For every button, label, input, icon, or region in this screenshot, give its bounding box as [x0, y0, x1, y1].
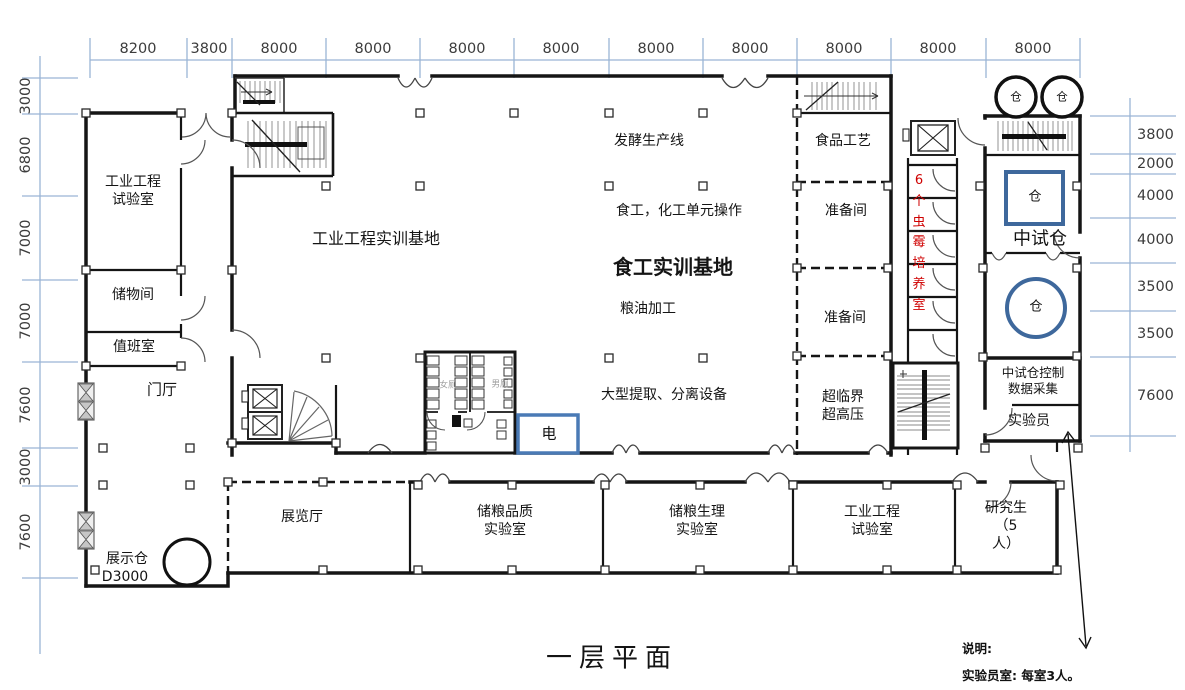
dim-right-6: 7600	[1137, 388, 1174, 404]
display-silo-circle	[164, 539, 210, 585]
room-pilot-silo: 中试仓	[1013, 227, 1067, 250]
silo-glyph-1: 仓	[1010, 90, 1022, 105]
note-heading: 说明:	[962, 638, 992, 657]
inner-walls	[86, 113, 1080, 573]
room-graduate: 研究生 （5 人）	[985, 500, 1027, 554]
dim-left-3: 7000	[18, 286, 34, 356]
dim-right-5: 3500	[1137, 326, 1174, 342]
room-grain-quality: 储粮品质 实验室	[477, 504, 533, 540]
dim-right-0: 3800	[1137, 127, 1174, 143]
silo-glyph-circle: 仓	[1029, 300, 1042, 317]
room-grain-oil: 粮油加工	[620, 301, 676, 319]
room-control: 中试仓控制 数据采集	[1002, 365, 1065, 397]
room-ie-test-left: 工业工程 试验室	[105, 174, 161, 210]
room-mold-culture: 6 个 虫 霉 培 养 室	[912, 171, 925, 317]
stair-exterior-topleft	[235, 78, 284, 112]
room-prep-1: 准备间	[825, 203, 867, 221]
room-display-silo: 展示仓	[106, 551, 148, 569]
room-supercritical: 超临界 超高压	[822, 389, 864, 425]
dim-right-2: 4000	[1137, 188, 1174, 204]
dim-top-4: 8000	[432, 41, 502, 57]
page-title: 一层平面	[546, 642, 678, 675]
room-electric: 电	[541, 424, 556, 443]
dim-left-2: 7000	[18, 203, 34, 273]
room-foyer: 门厅	[147, 380, 177, 399]
toilet-block	[425, 352, 515, 453]
silo-glyph-square: 仓	[1028, 190, 1041, 207]
revolving-door-upper	[78, 383, 94, 420]
room-grain-physiology: 储粮生理 实验室	[669, 504, 725, 540]
dim-top-2: 8000	[244, 41, 314, 57]
room-lab-technician: 实验员	[1008, 413, 1050, 431]
dim-top-8: 8000	[809, 41, 879, 57]
stair-topright	[804, 82, 878, 110]
stairwell-supercritical	[893, 363, 958, 448]
annotation-arrow	[1062, 432, 1091, 648]
stair-right-wing	[998, 121, 1072, 151]
silo-glyph-2: 仓	[1056, 90, 1068, 105]
dim-top-6: 8000	[621, 41, 691, 57]
room-fermentation: 发酵生产线	[614, 133, 684, 151]
dim-left-6: 7600	[18, 497, 34, 567]
dim-left-5: 3000	[18, 432, 34, 502]
dim-top-7: 8000	[715, 41, 785, 57]
room-extraction: 大型提取、分离设备	[601, 387, 727, 405]
floor-plan-page: 8200 3800 8000 8000 8000 8000 8000 8000 …	[0, 0, 1185, 690]
room-unit-operations: 食工，化工单元操作	[616, 203, 742, 221]
foyer-elevators	[242, 385, 282, 439]
dim-top-10: 8000	[998, 41, 1068, 57]
revolving-door-lower	[78, 512, 94, 549]
dim-right-1: 2000	[1137, 156, 1174, 172]
dashed-walls	[228, 76, 891, 573]
dim-right-4: 3500	[1137, 279, 1174, 295]
dim-top-1: 3800	[174, 41, 244, 57]
foyer-curved-stair	[289, 391, 332, 441]
dim-top-9: 8000	[903, 41, 973, 57]
room-food-tech: 食品工艺	[815, 133, 871, 151]
room-toilet-men: 男厕	[491, 380, 508, 391]
dim-top-3: 8000	[338, 41, 408, 57]
dim-left-1: 6800	[18, 120, 34, 190]
dim-top-0: 8200	[103, 41, 173, 57]
dim-top-5: 8000	[526, 41, 596, 57]
room-duty: 值班室	[113, 339, 155, 357]
dim-right-3: 4000	[1137, 232, 1174, 248]
room-ie-test-bottom: 工业工程 试验室	[844, 504, 900, 540]
room-toilet-women: 女厕	[439, 381, 456, 392]
dim-left-4: 7600	[18, 370, 34, 440]
room-food-training-base: 食工实训基地	[613, 255, 733, 281]
room-storage: 储物间	[112, 287, 154, 305]
note-body: 实验员室: 每室3人。	[962, 665, 1080, 684]
elevator-mold-column	[903, 121, 955, 155]
room-prep-2: 准备间	[824, 310, 866, 328]
room-display-silo-code: D3000	[102, 569, 148, 587]
room-exhibition: 展览厅	[281, 509, 323, 527]
room-ie-training-base: 工业工程实训基地	[312, 229, 440, 249]
floor-plan-drawing	[0, 0, 1185, 690]
